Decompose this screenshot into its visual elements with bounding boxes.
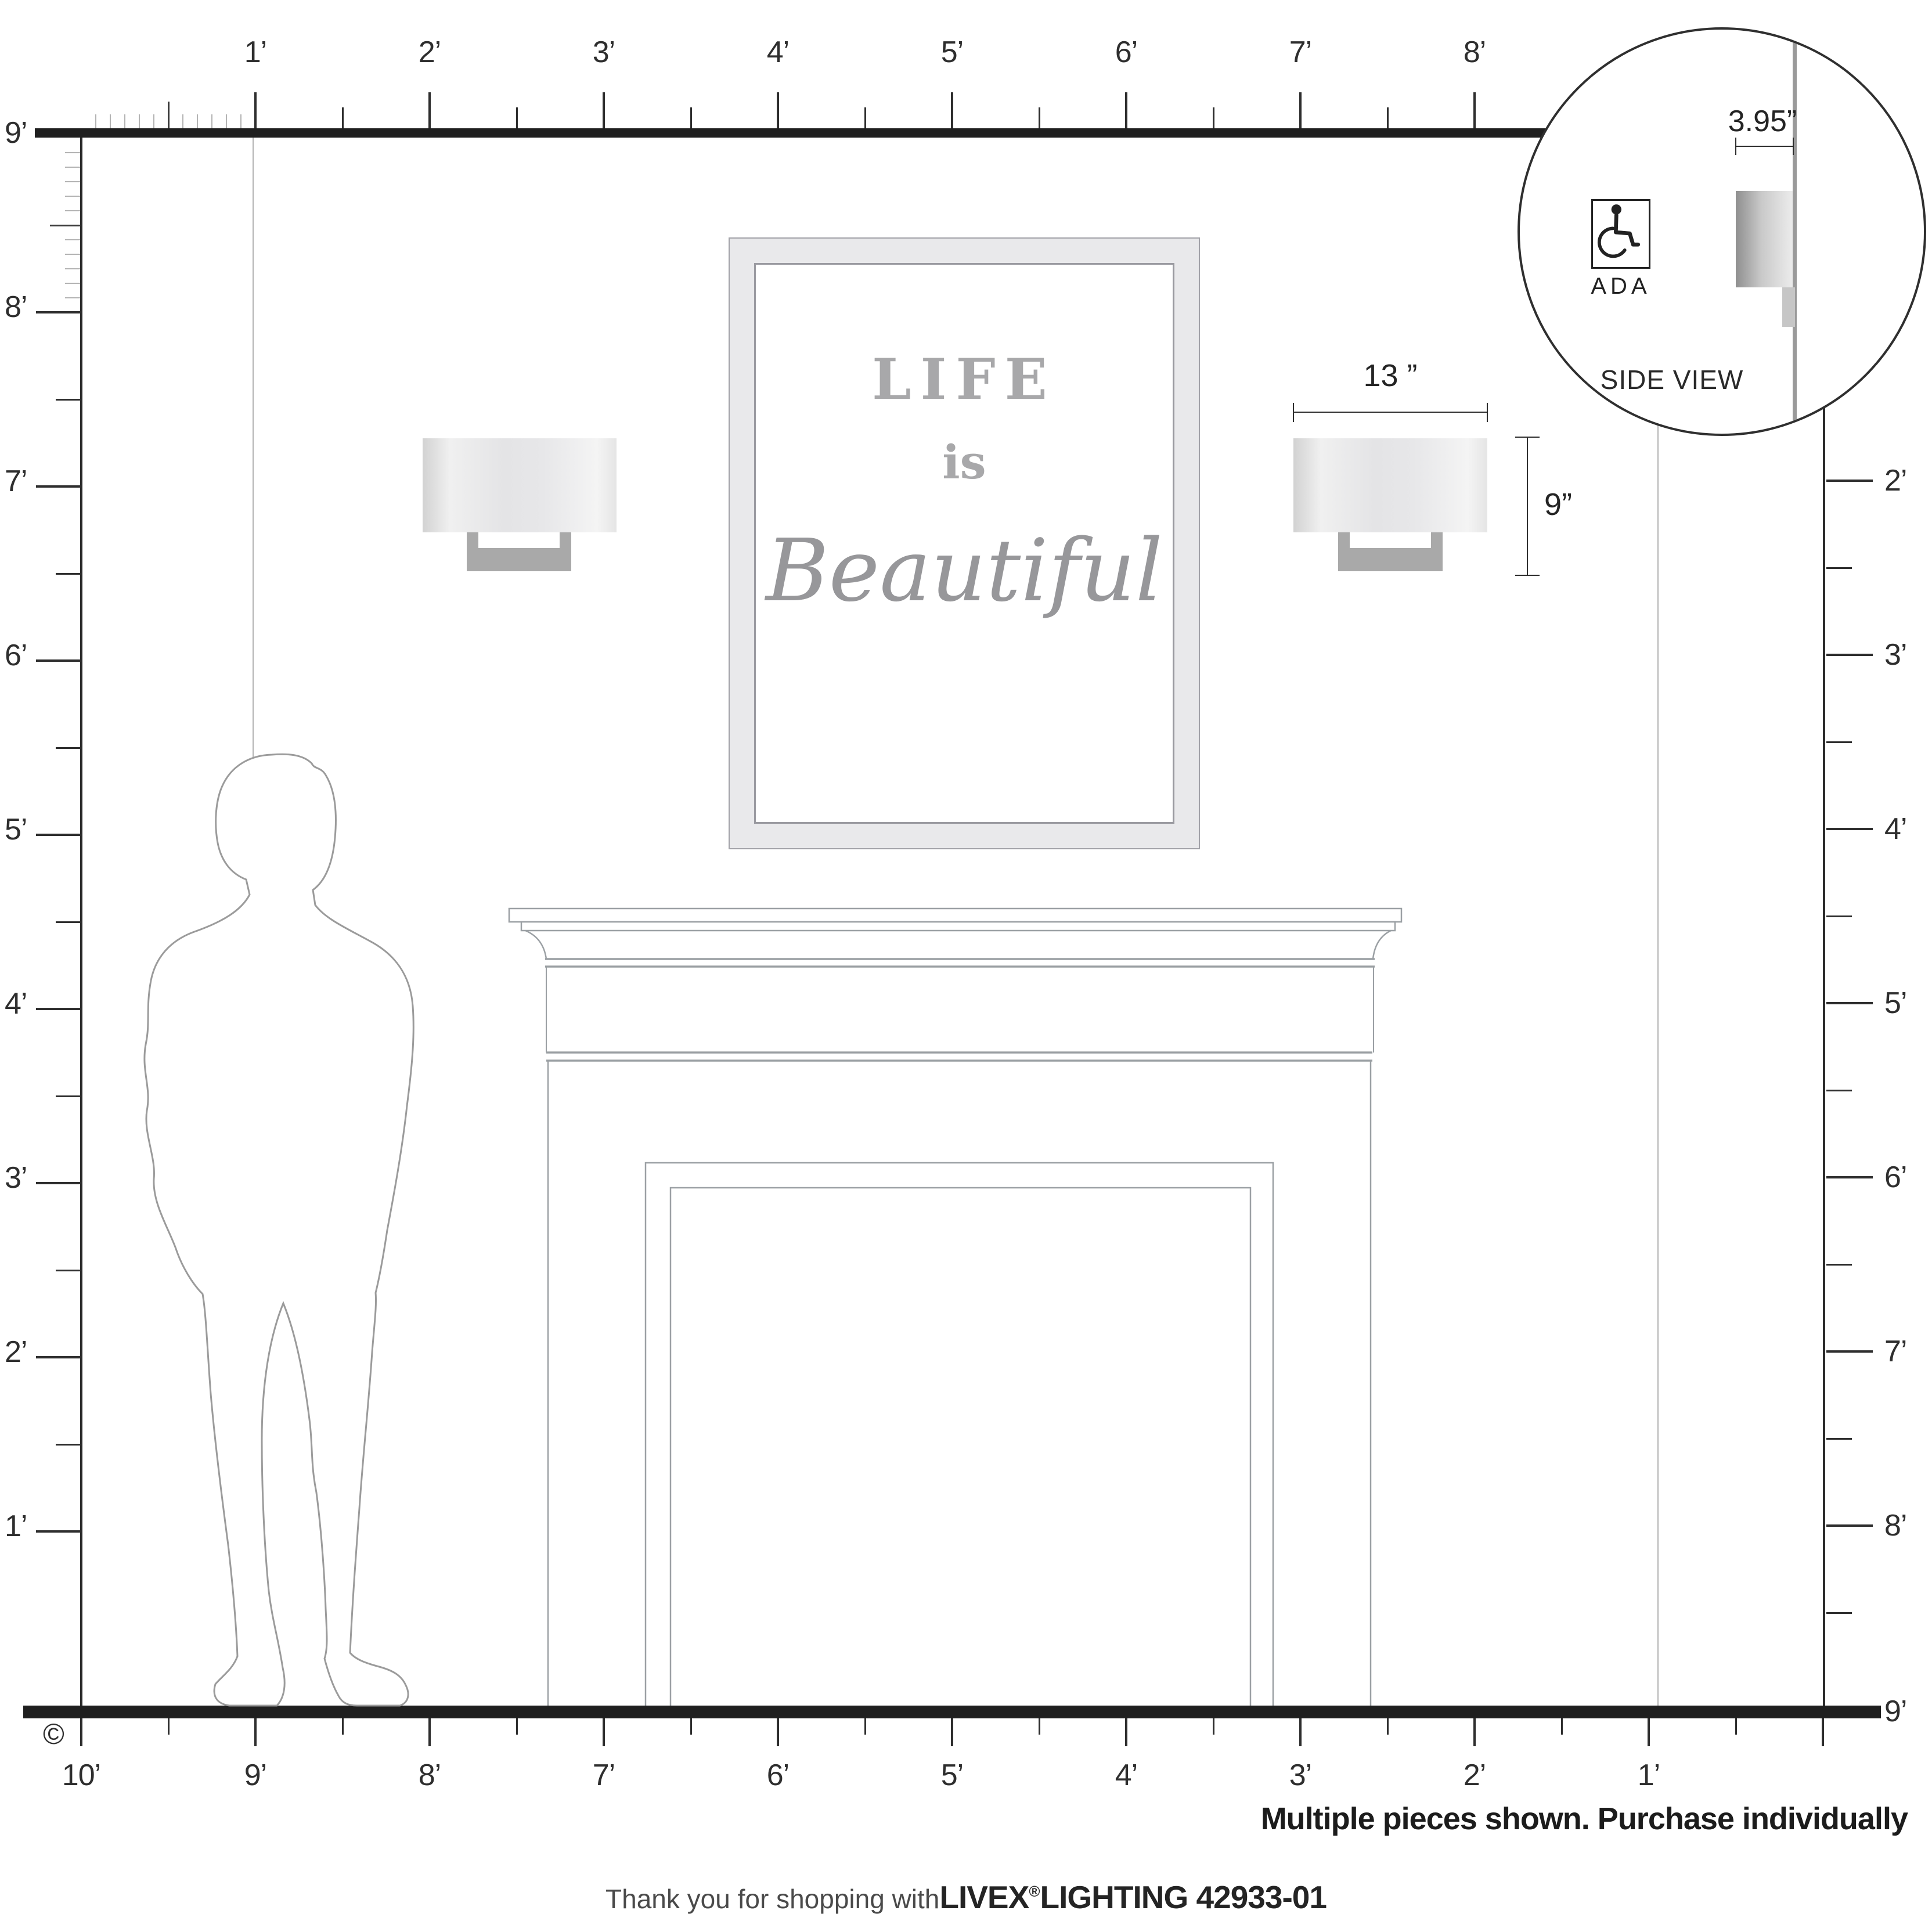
ada-box [1591,199,1650,269]
footer: Thank you for shopping with LIVEX ® LIGH… [0,1879,1932,1916]
purchase-note: Multiple pieces shown. Purchase individu… [1261,1801,1908,1837]
depth-dim-tick-left [1735,138,1736,155]
footer-prefix: Thank you for shopping with [605,1883,939,1915]
footer-brand: LIVEX [939,1879,1029,1916]
depth-dim-label: 3.95” [1704,104,1821,139]
inset-sconce-side-bracket [1782,287,1795,327]
inset-wall-line [1793,30,1797,434]
wheelchair-icon [1593,201,1649,267]
registered-mark: ® [1029,1883,1040,1901]
copyright-symbol: © [43,1717,64,1751]
depth-dim-tick-right [1793,138,1794,155]
depth-dim-line [1736,146,1794,147]
side-view-inset: 3.95” ADA SIDE VIEW [1518,27,1926,436]
side-view-caption: SIDE VIEW [1595,364,1749,395]
footer-suffix: LIGHTING 42933-01 [1040,1879,1326,1916]
inset-sconce-side-shade [1736,191,1793,287]
ada-label: ADA [1577,273,1665,300]
scale-diagram: 1’2’3’4’5’6’7’8’9’8’7’6’5’4’3’2’1’2’3’4’… [0,0,1932,1932]
